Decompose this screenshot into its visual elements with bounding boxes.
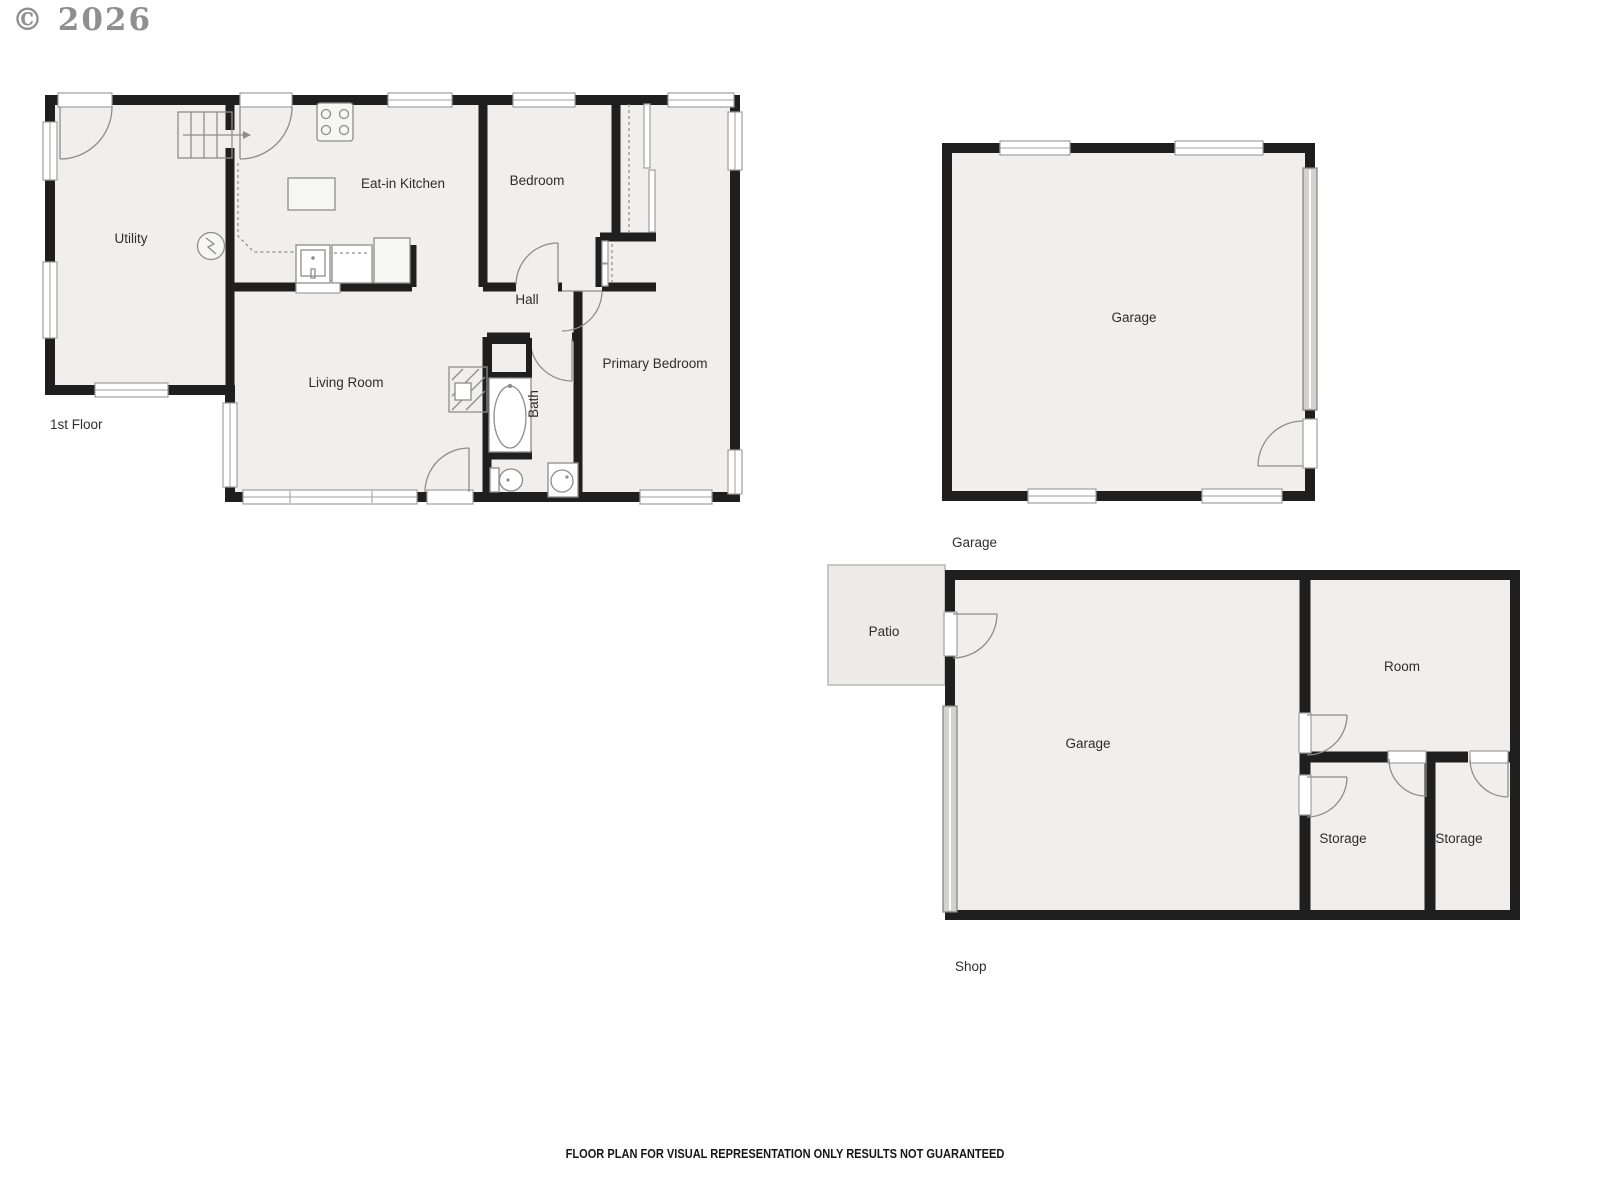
kitchen-sink-icon [296, 245, 330, 283]
toilet-icon [490, 468, 523, 492]
room-label-shop-garage: Garage [1065, 736, 1110, 751]
shop-garage-door-band [943, 706, 957, 912]
window [388, 93, 452, 107]
window [728, 450, 742, 494]
room-label-garage: Garage [1111, 310, 1156, 325]
floor-plan-drawing: Utility Eat-in Kitchen Bedroom Hall Livi… [0, 0, 1600, 1200]
room-label-primary-bedroom: Primary Bedroom [602, 356, 707, 371]
room-label-storage-left: Storage [1319, 831, 1366, 846]
room-label-room: Room [1384, 659, 1420, 674]
garage-door-band [1303, 168, 1317, 410]
bathtub-icon [489, 378, 531, 452]
window [728, 112, 742, 170]
room-label-bedroom: Bedroom [510, 173, 565, 188]
water-heater-icon [198, 233, 225, 260]
window [43, 262, 57, 338]
window [223, 403, 237, 487]
garage-plan: Garage Garage [947, 141, 1317, 550]
floor-plan-page: © 2026 [0, 0, 1600, 1200]
floor-label-shop: Shop [955, 959, 987, 974]
exterior-walls [50, 100, 735, 497]
room-label-storage-right: Storage [1435, 831, 1482, 846]
window [243, 490, 417, 504]
shop-plan: Patio Garage Room Storage Storage Shop [828, 565, 1515, 974]
floor-label-garage: Garage [952, 535, 997, 550]
first-floor-plan: Utility Eat-in Kitchen Bedroom Hall Livi… [43, 93, 742, 504]
fridge-icon [374, 238, 410, 283]
dishwasher-icon [332, 245, 372, 283]
stove-icon [317, 103, 353, 141]
room-label-kitchen: Eat-in Kitchen [361, 176, 445, 191]
room-label-patio: Patio [869, 624, 900, 639]
room-label-bath: Bath [526, 390, 541, 418]
kitchen-island [288, 178, 335, 210]
window [43, 122, 57, 180]
window [1000, 141, 1070, 155]
window [1028, 489, 1096, 503]
room-label-hall: Hall [515, 292, 538, 307]
room-label-living-room: Living Room [308, 375, 383, 390]
window [95, 383, 168, 397]
window [1175, 141, 1263, 155]
window [513, 93, 575, 107]
window [640, 490, 712, 504]
disclaimer-text: FLOOR PLAN FOR VISUAL REPRESENTATION ONL… [458, 1146, 1113, 1161]
floor-label-1st-floor: 1st Floor [50, 417, 103, 432]
window [1202, 489, 1282, 503]
bathroom-sink-icon [548, 463, 578, 497]
window [668, 93, 734, 107]
room-label-utility: Utility [115, 231, 148, 246]
